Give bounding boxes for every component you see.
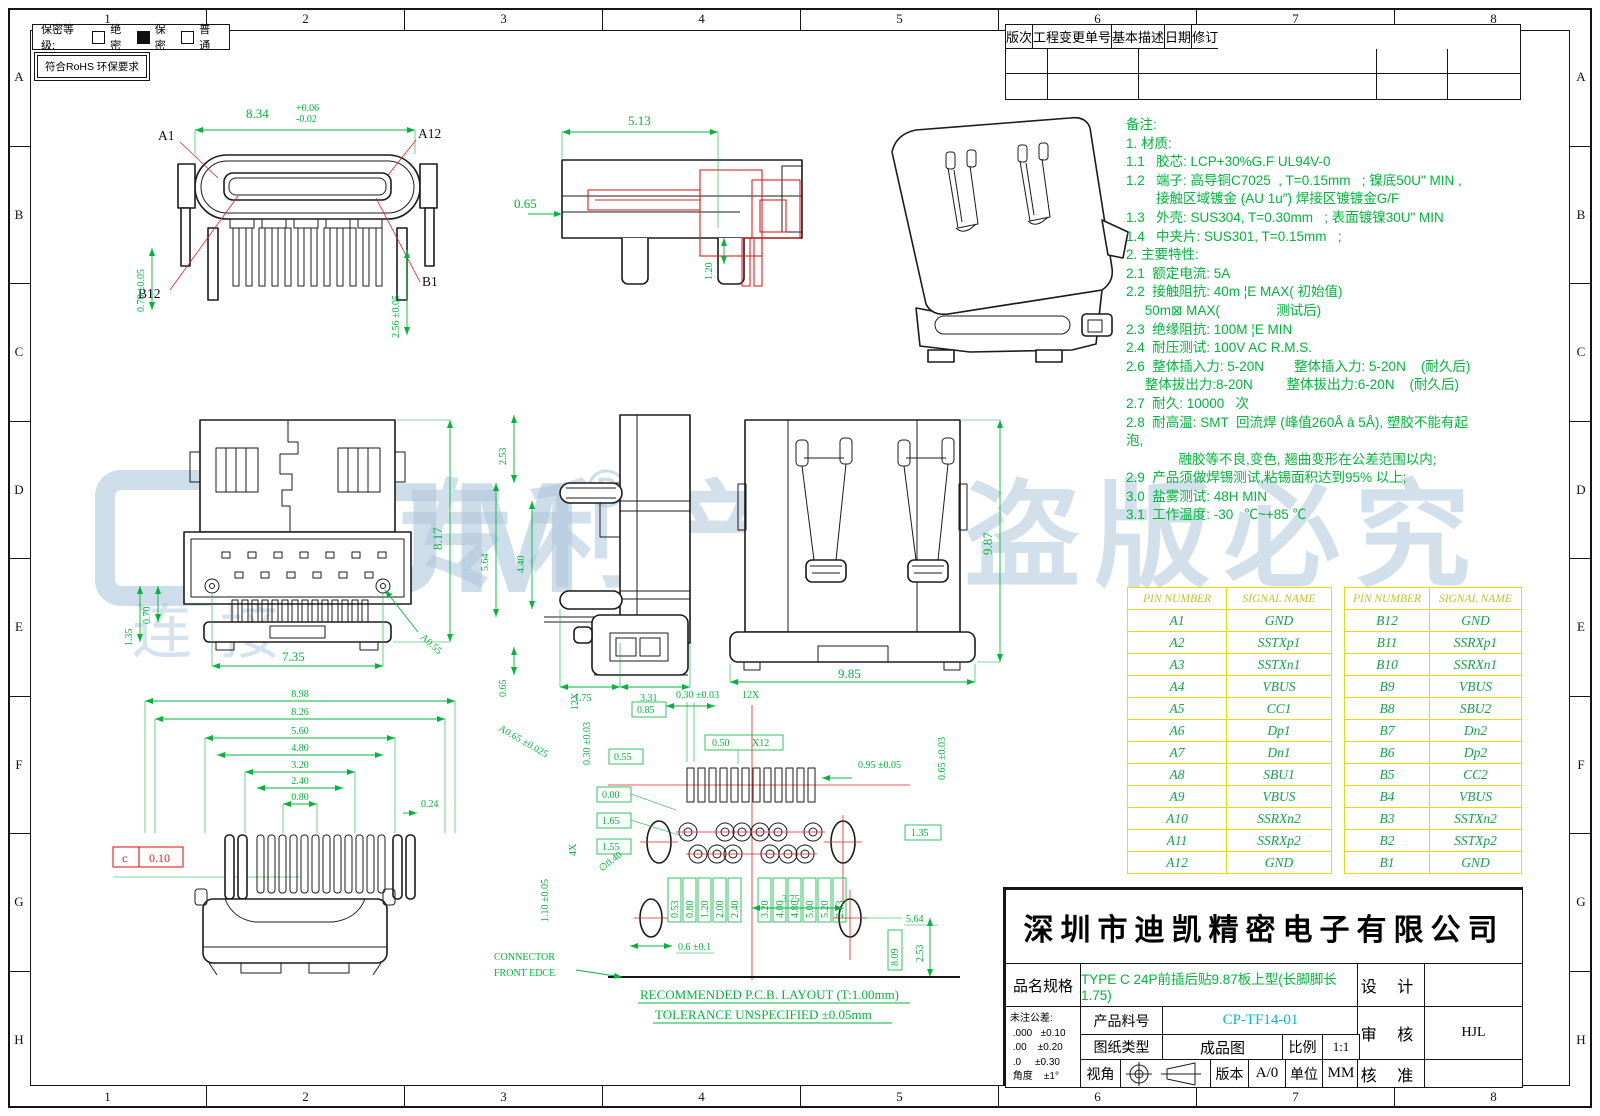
pin-row: B4 VBUS [1345,786,1523,808]
scale-value: 1:1 [1322,1034,1360,1060]
dim-label: 0.65 [514,196,537,211]
revision-header-cell: 基本描述 [1112,25,1165,49]
revision-header-cell: 版次 [1006,25,1033,49]
dim-label: 9.87 [980,532,995,555]
rohs-label: 符合RoHS 环保要求 [37,55,147,78]
signal-name: Dp1 [1226,719,1332,742]
checkbox-top-secret [92,31,105,44]
pin-row: A11 SSRXp2 [1128,830,1333,852]
dim-label: 8.09 [890,949,901,967]
scale-label: 比例 [1282,1034,1323,1060]
note-line: 50m⊠ MAX( 测试后) [1126,302,1538,321]
grid-col-label: 2 [206,8,404,30]
grid-row-label: C [8,283,30,421]
product-spec-label: 品名规格 [1005,963,1081,1007]
dim-label: 5.64 [906,914,924,925]
signal-name: SSTXp2 [1429,829,1522,852]
tolerance-line: 角度 ±1° [1010,1070,1059,1085]
view-pcb-layout: 0.30 ±0.03 12X 0.50 X12 [490,650,1000,1050]
dim-label: 0.24 [421,799,439,810]
drawing-type-value: 成品图 [1162,1034,1283,1060]
dim-label: 3.75 [782,894,800,905]
dim-label: X12 [752,738,769,749]
pin-table-header: PIN NUMBER SIGNAL NAME [1345,588,1523,610]
signal-name: SBU2 [1429,697,1522,720]
view-front: 8.34 +0.06 -0.02 A1 A12 B12 B1 0.70 ±0.0… [100,100,490,400]
dim-label: 5.00 [805,901,816,919]
grid-col-label: 5 [800,8,998,30]
note-line: 2.3 绝缘阻抗: 100M ¦E MIN [1126,321,1538,340]
pin-table-a: PIN NUMBER SIGNAL NAME A1 GND A2 SSTXp1 … [1128,588,1333,874]
dim-label: 2.53 [915,945,926,963]
checkbox-label: 保密 [155,21,177,53]
dim-label: 0.80 [685,901,696,919]
dim-label: 1.10 ±0.05 [540,879,551,922]
signal-name: SSRXp1 [1429,631,1522,654]
signal-name: CC2 [1429,763,1522,786]
unit-value: MM [1322,1059,1360,1088]
dim-label: 1.20 [700,901,711,919]
dim-label: 1.35 [911,828,929,839]
dim-label: 0.80 [291,792,309,803]
grid-row-label: C [1570,283,1592,421]
pin-label-a1: A1 [158,128,175,143]
boxed-dims-bottom: 0.53 0.80 1.20 2.00 2.40 3.20 4.00 4.80 … [668,878,846,922]
grid-row-label: H [8,971,30,1109]
dim-label: 0.70 [142,607,153,625]
pin-number: A7 [1127,741,1227,764]
dim-label: 5.60 [291,726,309,737]
dim-label: 3.20 [291,760,309,771]
grid-col-label: 8 [1394,1086,1592,1108]
dim-label: 4.40 [516,556,527,574]
pin-row: A5 CC1 [1128,698,1333,720]
note-line: 1.1 胶芯: LCP+30%G.F UL94V-0 [1126,153,1538,172]
dim-label: 2.40 [730,901,741,919]
note-line: 1. 材质: [1126,135,1538,154]
pin-number: A6 [1127,719,1227,742]
pin-row: B1 GND [1345,852,1523,874]
note-line: 2.4 耐压测试: 100V AC R.M.S. [1126,339,1538,358]
pin-row: A2 SSTXp1 [1128,632,1333,654]
dim-label: 0.6 ±0.1 [678,942,711,953]
note-line: 2.8 耐高温: SMT 回流焊 (峰值260Å ā 5Å), 塑胶不能有起 [1126,414,1538,433]
grid-col-label: 4 [602,8,800,30]
note-line: 1.4 中夹片: SUS301, T=0.15mm ; [1126,228,1538,247]
pin-number: A3 [1127,653,1227,676]
company-name: 深圳市迪凯精密电子有限公司 [1005,889,1523,964]
note-line: 2.1 额定电流: 5A [1126,265,1538,284]
through-holes-row1 [676,823,825,841]
dim-label: 0.30 ±0.03 [582,722,593,765]
dim-label: 2.56 ±0.05 [391,295,402,338]
dim-tol-minus: -0.02 [296,114,317,125]
pin-number: B3 [1344,807,1430,830]
revision-header-cell: 修订 [1192,25,1218,49]
approve-value [1424,1059,1523,1088]
signal-name: GND [1226,609,1332,632]
dim-label: A0.55 [418,632,444,657]
dim-label: 2.00 [715,901,726,919]
signal-name: Dn2 [1429,719,1522,742]
pin-row: A6 Dp1 [1128,720,1333,742]
pin-row: B6 Dp2 [1345,742,1523,764]
dim-label: 1.65 [602,816,620,827]
signal-name: SSRXp2 [1226,829,1332,852]
grid-col-label: 4 [602,1086,800,1108]
grid-band-bottom: 12345678 [8,1086,1592,1108]
tolerance-line: 未注公差: [1010,1012,1053,1027]
tolerance-block: 未注公差: .000 ±0.10 .00 ±0.20 .0 ±0.30 角度 ±… [1005,1006,1081,1088]
signal-name: GND [1429,609,1522,632]
tolerance-line: .0 ±0.30 [1010,1056,1060,1071]
grid-col-label: 1 [8,1086,206,1108]
audit-label: 审 核 [1357,1006,1425,1060]
grid-col-label: 2 [206,1086,404,1108]
pin-row: B12 GND [1345,610,1523,632]
pin-row: A3 SSTXn1 [1128,654,1333,676]
pin-row: A9 VBUS [1128,786,1333,808]
grid-row-label: E [1570,558,1592,696]
pin-row: B2 SSTXp2 [1345,830,1523,852]
part-number: CP-TF14-01 [1162,1006,1359,1035]
dim-label: 2.53 [498,448,509,466]
grid-row-label: D [1570,421,1592,559]
notes-block: 备注:1. 材质:1.1 胶芯: LCP+30%G.F UL94V-01.2 端… [1126,116,1538,525]
grid-col-label: 5 [800,1086,998,1108]
pin-header-signal: SIGNAL NAME [1429,587,1522,610]
dim-label: 0.85 [637,705,655,716]
dim-label: 4.80 [291,743,309,754]
pin-row: A4 VBUS [1128,676,1333,698]
pin-row: A8 SBU1 [1128,764,1333,786]
pin-number: A5 [1127,697,1227,720]
pin-row: B11 SSRXp1 [1345,632,1523,654]
pin-table-b: PIN NUMBER SIGNAL NAME B12 GND B11 SSRXp… [1345,588,1523,874]
pcb-note: RECOMMENDED P.C.B. LAYOUT (T:1.00mm) [640,987,899,1002]
grid-row-label: B [1570,146,1592,284]
pin-comb [257,835,385,893]
pin-number: B9 [1344,675,1430,698]
pin-number: A1 [1127,609,1227,632]
grid-row-label: E [8,558,30,696]
note-line: 1.3 外壳: SUS304, T=0.30mm ; 表面镀镍30U" MIN [1126,209,1538,228]
pin-row: B9 VBUS [1345,676,1523,698]
tolerance-line: .00 ±0.20 [1010,1041,1063,1056]
version-label: 版本 [1210,1059,1249,1088]
product-name: TYPE C 24P前插后贴9.87板上型(长脚脚长1.75) [1080,963,1358,1007]
revision-header-cell: 日期 [1165,25,1192,49]
pin-label-b1: B1 [422,274,438,289]
dim-label: 12X [742,690,760,701]
unit-label: 单位 [1285,1059,1323,1088]
dim-label: 0.55 [614,752,632,763]
confidentiality-box: 保密等级: 绝密 保密 普通 [32,24,230,50]
grid-row-label: F [8,696,30,834]
signal-name: SSRXn1 [1429,653,1522,676]
rohs-box: 符合RoHS 环保要求 [34,52,150,81]
signal-name: SSTXp1 [1226,631,1332,654]
audit-value: HJL [1424,1006,1523,1060]
grid-row-label: A [1570,8,1592,146]
pin-number: B8 [1344,697,1430,720]
dim-label: 1.20 [704,263,715,281]
note-line: 2.6 整体插入力: 5-20N 整体插入力: 5-20N (耐久后) [1126,358,1538,377]
grid-band-right: ABCDEFGH [1570,8,1592,1108]
dim-label: 4X [568,843,579,856]
grid-col-label: 3 [404,1086,602,1108]
pcb-note: TOLERANCE UNSPECIFIED ±0.05mm [655,1007,872,1022]
signal-name: VBUS [1226,675,1332,698]
pin-number: A8 [1127,763,1227,786]
dim-label: 5.20 [820,901,831,919]
signal-name: VBUS [1226,785,1332,808]
dim-label: 0.65 ±0.03 [937,737,948,780]
datum-value: 0.10 [149,851,170,865]
pin-row: A1 GND [1128,610,1333,632]
revision-header-row: 版次工程变更单号基本描述日期修订 [1006,25,1520,49]
pin-number: B12 [1344,609,1430,632]
checkbox-label: 普通 [199,21,221,53]
note-line: 泡, [1126,432,1538,451]
through-holes-row2 [686,845,817,863]
dim-label: 2.40 [291,776,309,787]
signal-name: GND [1429,851,1522,874]
grid-row-label: B [8,146,30,284]
checkbox-normal [181,31,194,44]
pin-label-a12: A12 [418,126,441,141]
edge-label: FRONT EDCE [494,968,555,979]
view-side-top: 5.13 0.65 1.20 [500,108,840,308]
dim-label: 8.34 [246,106,269,121]
pin-number: A12 [1127,851,1227,874]
pin-header-signal: SIGNAL NAME [1226,587,1332,610]
pin-number: B5 [1344,763,1430,786]
signal-name: SSTXn2 [1429,807,1522,830]
pin-row: A12 GND [1128,852,1333,874]
checkbox-secret [137,31,150,44]
dim-label: 2.73 [835,901,846,919]
view-rear: 9.87 9.85 [700,400,1030,690]
dim-label: 7.35 [282,649,305,664]
pin-row: B5 CC2 [1345,764,1523,786]
projection-symbol-icon [1123,1061,1209,1087]
dim-label: 1.35 [124,629,135,647]
view-top: 8.17 7.35 0.70 1.35 A0.55 [120,390,480,690]
pin-number: B6 [1344,741,1430,764]
signal-name: Dp2 [1429,741,1522,764]
design-value [1424,963,1523,1007]
note-line: 3.0 盐雾测试: 48H MIN [1126,488,1538,507]
dim-label: 3.20 [760,901,771,919]
note-line: 2. 主要特性: [1126,246,1538,265]
pin-number: B1 [1344,851,1430,874]
dim-label: 8.98 [291,689,309,700]
projection-symbol [1120,1059,1211,1088]
pin-table-header: PIN NUMBER SIGNAL NAME [1128,588,1333,610]
datum-box: c 0.10 [113,847,183,867]
signal-name: CC1 [1226,697,1332,720]
signal-name: SBU1 [1226,763,1332,786]
dim-label: 12X [570,692,581,710]
grid-row-label: A [8,8,30,146]
pin-row: A7 Dn1 [1128,742,1333,764]
dim-label: 0.53 [670,901,681,919]
grid-col-label: 6 [998,1086,1196,1108]
revision-table: 版次工程变更单号基本描述日期修订 [1005,24,1521,100]
stacked-dims: 8.98 8.26 5.60 4.80 3.20 2.40 0.80 [145,689,455,833]
drawing-sheet: KJM® 连接 专利产品 盗版必究 12345678 12345678 ABCD… [0,0,1600,1116]
view-angle-label: 视角 [1080,1059,1121,1088]
pin-number: A11 [1127,829,1227,852]
dim-label: 0.50 [712,738,730,749]
pin-number: B4 [1344,785,1430,808]
grid-row-label: G [1570,833,1592,971]
grid-row-label: G [8,833,30,971]
signal-name: SSTXn1 [1226,653,1332,676]
pin-row: B8 SBU2 [1345,698,1523,720]
dim-label: 0.95 ±0.05 [858,760,901,771]
note-line: 1.2 端子: 高导铜C7025 , T=0.15mm ; 镍底50U" MIN… [1126,172,1538,191]
dim-label: 0.00 [602,790,620,801]
signal-name: VBUS [1429,785,1522,808]
revision-empty-row [1006,49,1520,74]
pin-number: B10 [1344,653,1430,676]
datum-letter: c [122,851,127,865]
dim-label: A0.65 ±0.025 [497,723,550,760]
note-line: 整体拔出力:8-20N 整体拔出力:6-20N (耐久后) [1126,376,1538,395]
dim-label: 0.30 ±0.03 [676,690,719,701]
signal-name: Dn1 [1226,741,1332,764]
pin-number: B7 [1344,719,1430,742]
pin-row: B3 SSTXn2 [1345,808,1523,830]
checkbox-label: 绝密 [110,21,132,53]
tolerance-line: .000 ±0.10 [1010,1027,1066,1042]
revision-empty-row [1006,74,1520,99]
signal-name: GND [1226,851,1332,874]
grid-col-label: 3 [404,8,602,30]
part-number-label: 产品料号 [1080,1006,1163,1035]
pin-number: A10 [1127,807,1227,830]
dim-label: 8.17 [430,527,445,550]
dim-tol-plus: +0.06 [296,103,319,114]
dim-label: 8.26 [291,707,309,718]
pin-header-number: PIN NUMBER [1127,587,1227,610]
note-line: 备注: [1126,116,1538,135]
grid-row-label: F [1570,696,1592,834]
grid-col-label: 7 [1196,1086,1394,1108]
pin-number: B11 [1344,631,1430,654]
pin-header-number: PIN NUMBER [1344,587,1430,610]
dim-label: 5.13 [628,113,651,128]
grid-row-label: H [1570,971,1592,1109]
note-line: 融胶等不良,变色, 翘曲变形在公差范围以内; [1126,451,1538,470]
version-value: A/0 [1248,1059,1286,1088]
grid-band-left: ABCDEFGH [8,8,30,1108]
note-line: 2.9 产品须做焊锡测试,粘锡面积达到95% 以上; [1126,469,1538,488]
confidentiality-label: 保密等级: [41,21,87,53]
note-line: 3.1 工作温度: -30 ℃~+85 ℃ [1126,506,1538,525]
pin-number: A4 [1127,675,1227,698]
note-line: 2.2 接触阻抗: 40m ¦E MAX( 初始值) [1126,283,1538,302]
drawing-type-label: 图纸类型 [1080,1034,1163,1060]
revision-header-cell: 工程变更单号 [1033,25,1112,49]
pin-comb [233,228,382,286]
signal-name: VBUS [1429,675,1522,698]
pin-row: A10 SSRXn2 [1128,808,1333,830]
dim-label: 5.64 [480,554,491,572]
pin-row: B10 SSRXn1 [1345,654,1523,676]
pin-row: B7 Dn2 [1345,720,1523,742]
note-line: 2.7 耐久: 10000 次 [1126,395,1538,414]
view-footprint: 8.98 8.26 5.60 4.80 3.20 2.40 0.80 0.24 … [105,685,485,990]
note-line: 接触区域镀金 (AU 1u″) 焊接区镀镀金G/F [1126,190,1538,209]
pin-number: A2 [1127,631,1227,654]
pin-number: A9 [1127,785,1227,808]
grid-row-label: D [8,421,30,559]
approve-label: 核 准 [1357,1059,1425,1088]
dim-label: 0.70 ±0.05 [136,269,147,312]
dim-label: 1.55 [602,842,620,853]
dim-label: ∅0.40 [597,850,624,875]
pin-number: B2 [1344,829,1430,852]
design-label: 设 计 [1357,963,1425,1007]
title-block: 深圳市迪凯精密电子有限公司 品名规格 TYPE C 24P前插后贴9.87板上型… [1003,887,1523,1086]
view-isometric [820,100,1120,400]
signal-name: SSRXn2 [1226,807,1332,830]
edge-label: CONNECTOR [494,952,555,963]
